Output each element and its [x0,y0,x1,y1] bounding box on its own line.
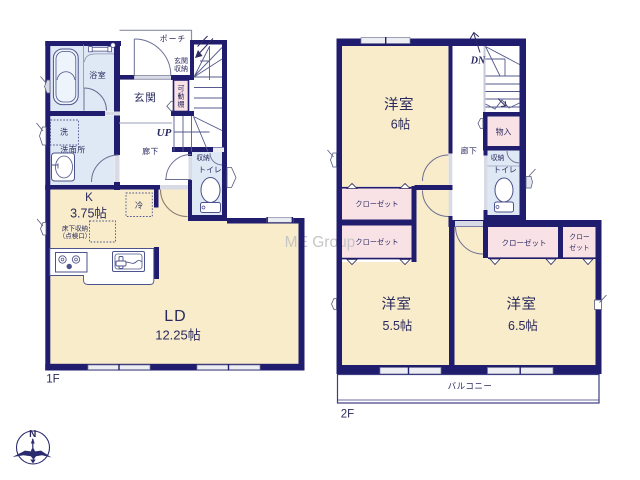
svg-text:1F: 1F [46,374,59,386]
svg-text:床下収納: 床下収納 [62,224,88,233]
svg-text:K: K [85,192,93,204]
svg-text:洋室: 洋室 [382,296,412,313]
svg-text:動: 動 [178,92,185,101]
svg-text:ポーチ: ポーチ [160,35,186,44]
svg-text:6帖: 6帖 [391,117,410,132]
svg-text:クローゼット: クローゼット [355,200,398,209]
svg-text:棚: 棚 [178,100,185,109]
svg-text:5.5帖: 5.5帖 [383,318,413,333]
svg-text:洗: 洗 [60,127,68,137]
svg-text:2F: 2F [341,409,354,421]
svg-text:玄関: 玄関 [134,91,157,104]
svg-text:浴室: 浴室 [89,70,106,80]
svg-text:物入: 物入 [496,127,512,137]
svg-text:DN: DN [470,56,486,67]
svg-text:収納: 収納 [174,64,188,73]
svg-text:トイレ: トイレ [493,166,517,175]
svg-text:クローゼット: クローゼット [355,238,398,247]
svg-text:12.25帖: 12.25帖 [155,328,201,343]
svg-text:ゼット: ゼット [569,243,589,252]
svg-text:3.75帖: 3.75帖 [70,206,107,221]
svg-text:廊下: 廊下 [461,146,478,156]
svg-text:UP: UP [157,127,172,139]
svg-text:収納: 収納 [196,153,210,162]
svg-text:クローゼット: クローゼット [502,238,547,248]
svg-text:冷: 冷 [135,200,143,210]
svg-text:LD: LD [164,308,186,325]
svg-text:ME Group: ME Group [285,234,356,251]
svg-text:バルコニー: バルコニー [448,381,493,391]
svg-text:洋室: 洋室 [507,296,537,313]
svg-text:クロー: クロー [569,233,590,241]
svg-text:トイレ: トイレ [198,166,222,175]
svg-text:収納: 収納 [491,153,505,162]
svg-text:（点検口）: （点検口） [59,231,92,240]
svg-text:廊下: 廊下 [142,146,159,156]
svg-text:洋室: 洋室 [384,97,414,114]
svg-text:6.5帖: 6.5帖 [508,318,538,333]
svg-text:玄関: 玄関 [174,56,188,65]
svg-text:可: 可 [178,85,185,93]
